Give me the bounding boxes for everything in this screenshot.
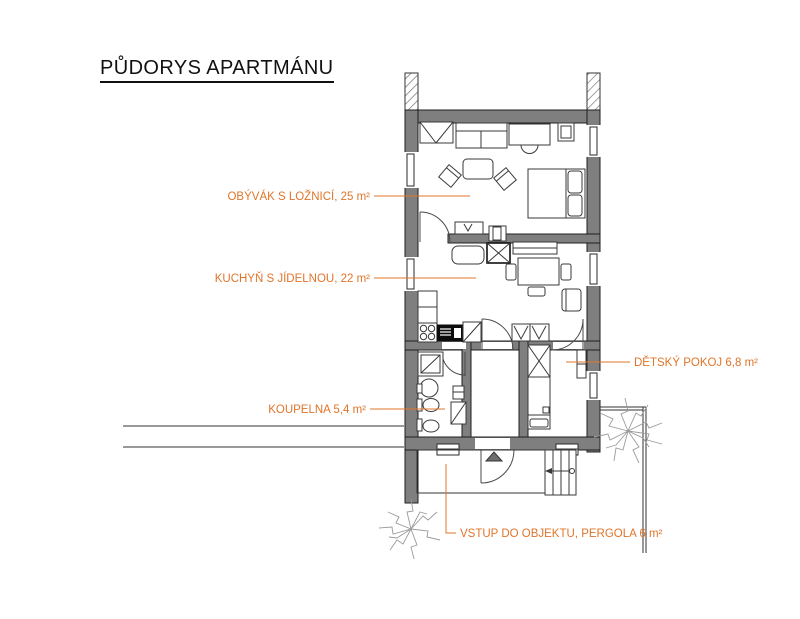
- terrain-lines: [123, 426, 404, 447]
- party-wall-stubs: [405, 73, 600, 111]
- window-living-left: [404, 152, 419, 188]
- flue-box: [489, 226, 506, 241]
- bench: [513, 242, 557, 254]
- label-kids-room: DĚTSKÝ POKOJ 6,8 m²: [634, 356, 758, 369]
- tree-right: [594, 398, 662, 463]
- shower: [418, 352, 443, 376]
- label-entrance: VSTUP DO OBJEKTU, PERGOLA 6 m²: [460, 528, 663, 540]
- window-living-right: [586, 125, 601, 157]
- door-living-kitchen: [420, 212, 450, 242]
- bathroom-fixtures: [417, 352, 466, 432]
- tv-cabinet: [455, 222, 483, 234]
- coffee-table: [463, 159, 493, 179]
- desk: [509, 124, 550, 154]
- sofa: [456, 123, 507, 148]
- living-room-furniture: [420, 122, 585, 218]
- toilet: [417, 399, 439, 412]
- label-bathroom: KOUPELNA 5,4 m²: [268, 404, 366, 416]
- dining-table: [518, 258, 559, 285]
- kitchen-island: [452, 246, 484, 264]
- kids-wardrobe: [528, 345, 550, 377]
- label-living-room: OBÝVÁK S LOŽNICÍ, 25 m²: [227, 190, 370, 203]
- entrance-arrow: [486, 452, 502, 461]
- double-bed: [528, 169, 585, 218]
- window-dining-right: [586, 252, 601, 286]
- page-title: PŮDORYS APARTMÁNU: [100, 57, 334, 83]
- side-cabinet: [558, 123, 574, 141]
- armchair-2: [494, 168, 517, 191]
- corner-cabinet: [463, 322, 481, 342]
- hall-bench: [451, 402, 466, 424]
- sink: [417, 379, 438, 397]
- kids-bed: [528, 377, 550, 429]
- corner-chair: [562, 289, 581, 311]
- shelf: [577, 350, 586, 378]
- window-kitchen-left: [404, 257, 419, 291]
- stove-unit: [487, 243, 510, 263]
- armchair-1: [439, 165, 462, 188]
- kitchen-counter: [418, 291, 437, 323]
- entrance-door: [481, 450, 514, 483]
- floorplan-drawing: OBÝVÁK S LOŽNICÍ, 25 m² KUCHYŇ S JÍDELNO…: [0, 0, 800, 614]
- leader-entrance: [446, 464, 456, 533]
- tree-left: [379, 499, 440, 559]
- bidet: [417, 419, 439, 432]
- label-kitchen: KUCHYŇ S JÍDELNOU, 22 m²: [215, 272, 370, 285]
- kids-room-furniture: [528, 345, 586, 429]
- cooktop: [418, 323, 437, 342]
- shoe-cabinet: [512, 324, 549, 341]
- window-kids-right: [586, 371, 601, 400]
- oven-sink-unit: [437, 325, 463, 341]
- radiator: [453, 386, 464, 399]
- staircase: [545, 450, 576, 495]
- wardrobe: [420, 122, 453, 143]
